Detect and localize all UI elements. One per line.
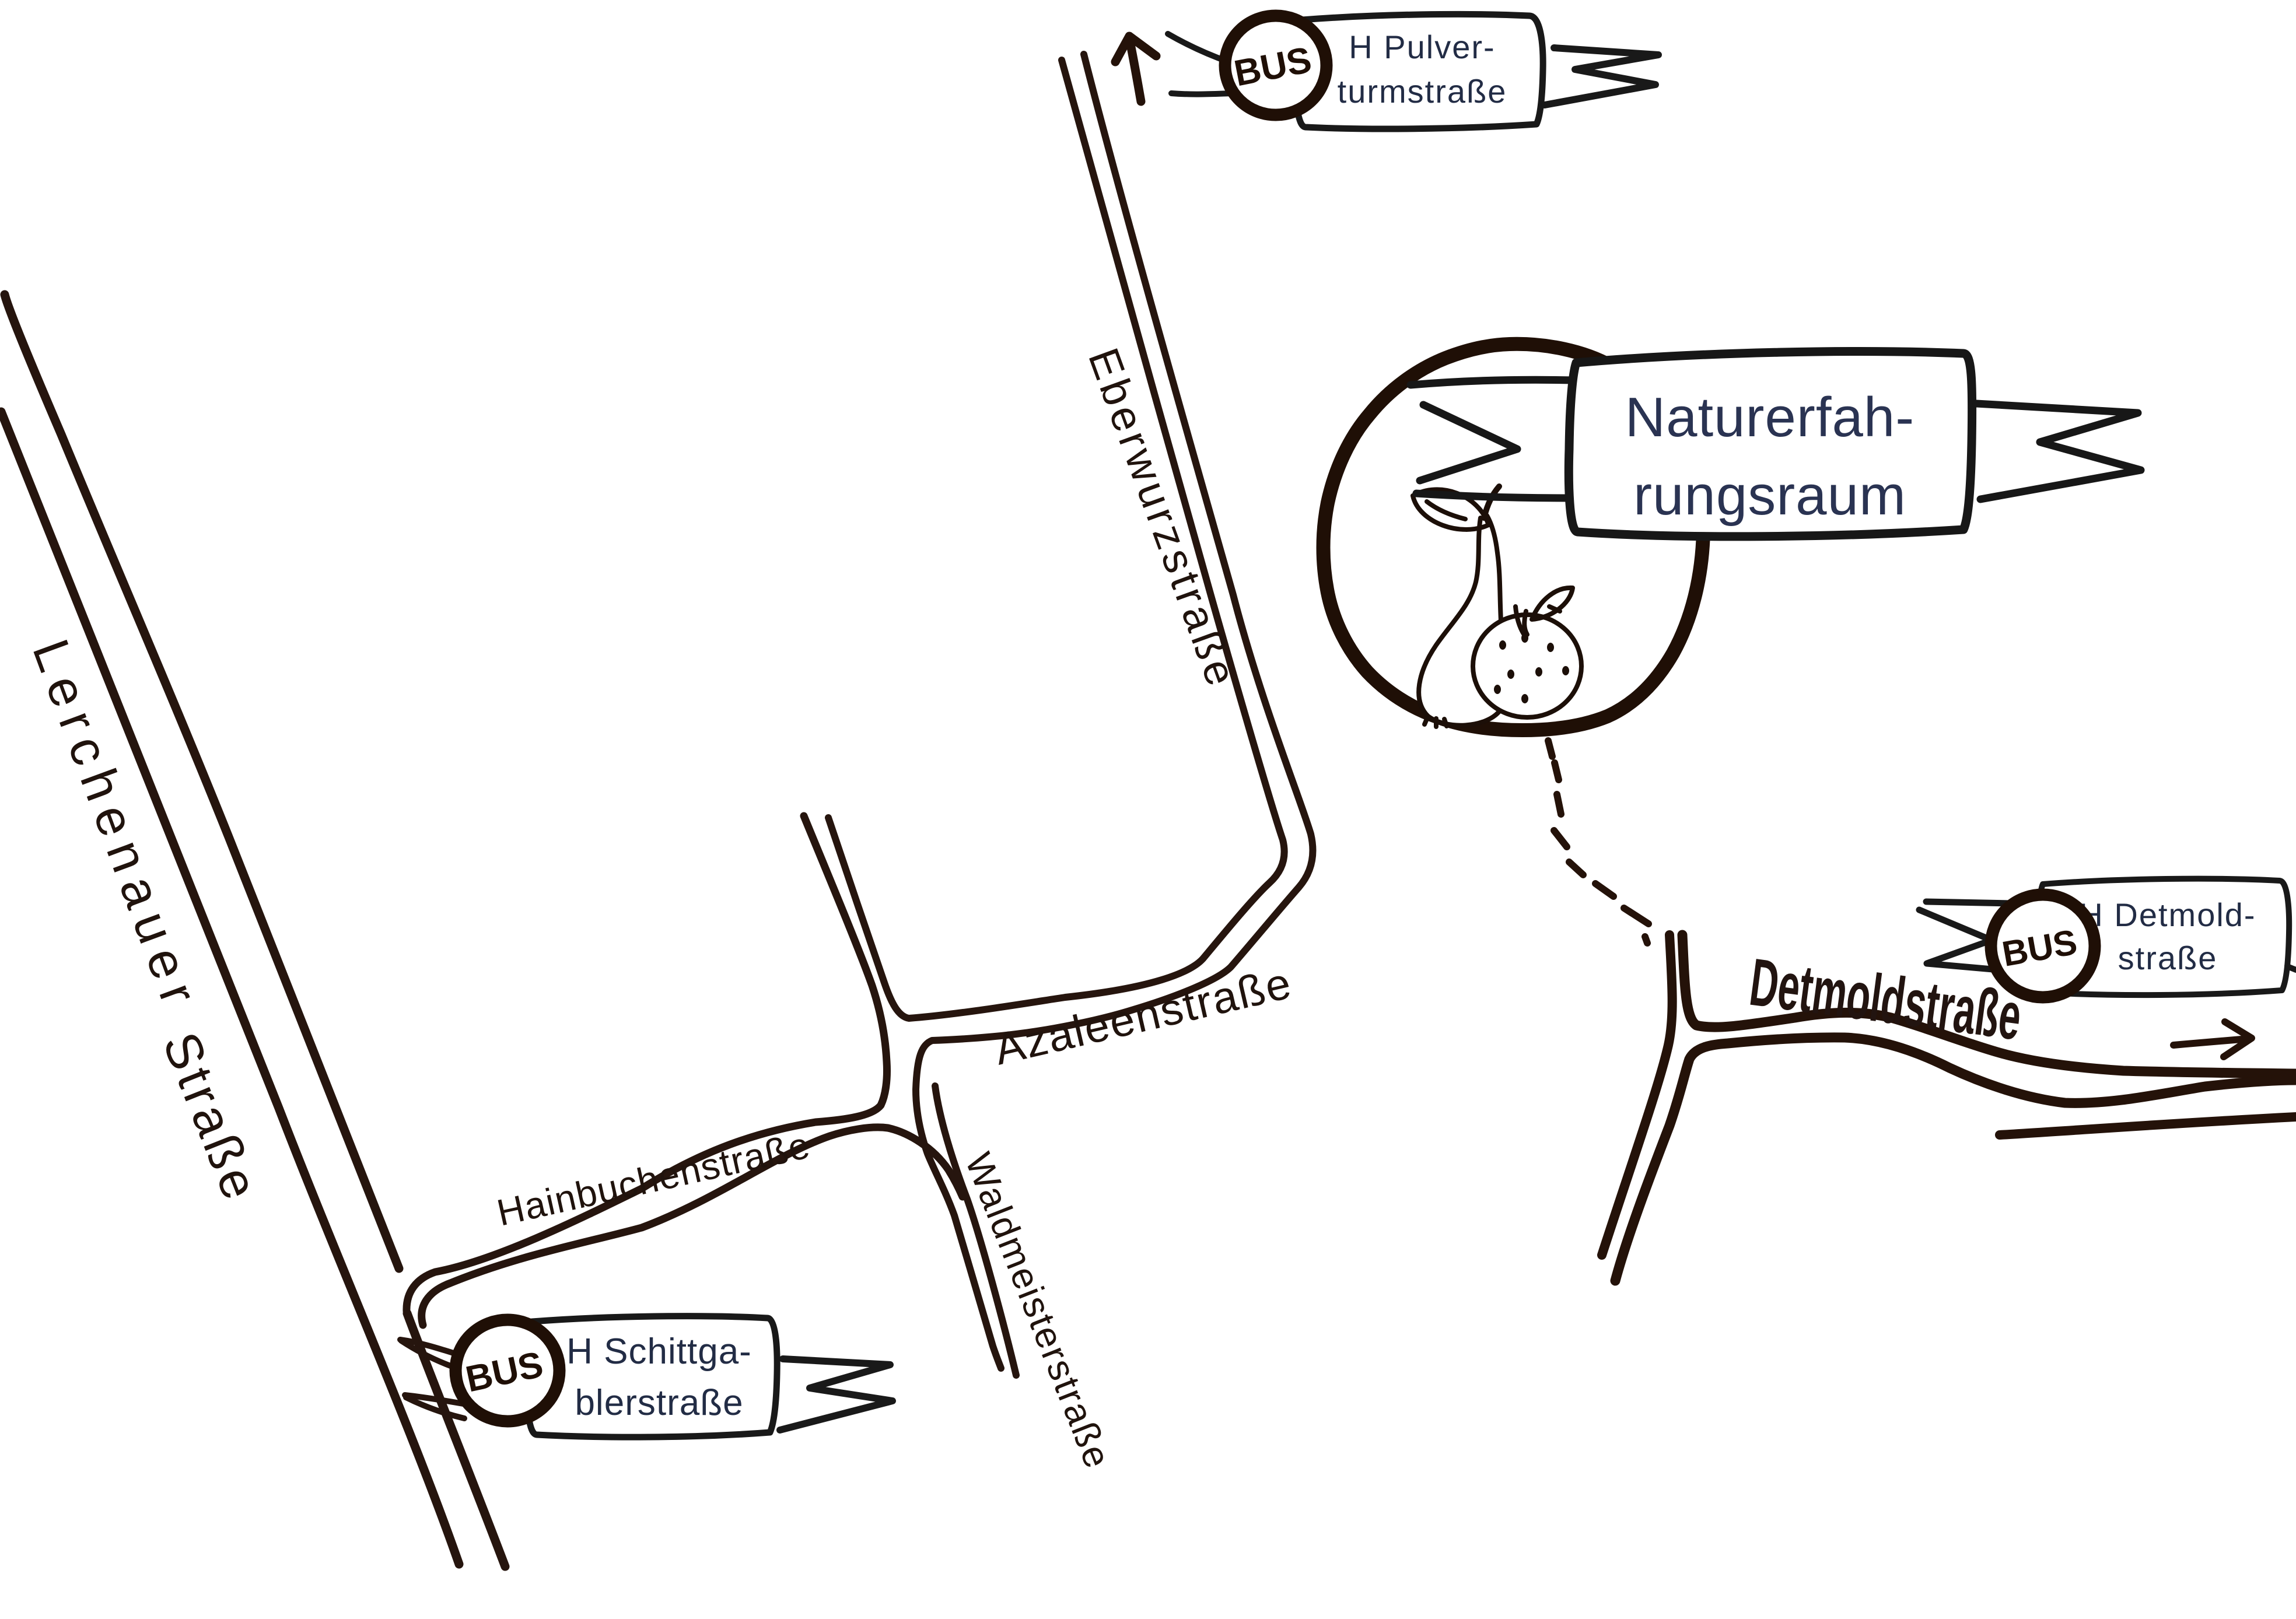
svg-text:turmstraße: turmstraße — [1338, 73, 1507, 110]
svg-text:blerstraße: blerstraße — [575, 1383, 743, 1423]
svg-text:H Detmold-: H Detmold- — [2079, 896, 2256, 933]
svg-text:H Schittga-: H Schittga- — [566, 1331, 752, 1372]
svg-text:Hainbuchenstraße: Hainbuchenstraße — [493, 1124, 814, 1234]
svg-text:straße: straße — [2118, 940, 2218, 976]
svg-text:H Pulver-: H Pulver- — [1349, 29, 1495, 65]
svg-text:rungsraum: rungsraum — [1633, 464, 1906, 527]
svg-text:Azaleenstraße: Azaleenstraße — [990, 958, 1297, 1075]
svg-text:Naturerfah-: Naturerfah- — [1625, 386, 1915, 448]
svg-text:Eberwurzstraße: Eberwurzstraße — [1079, 342, 1247, 693]
